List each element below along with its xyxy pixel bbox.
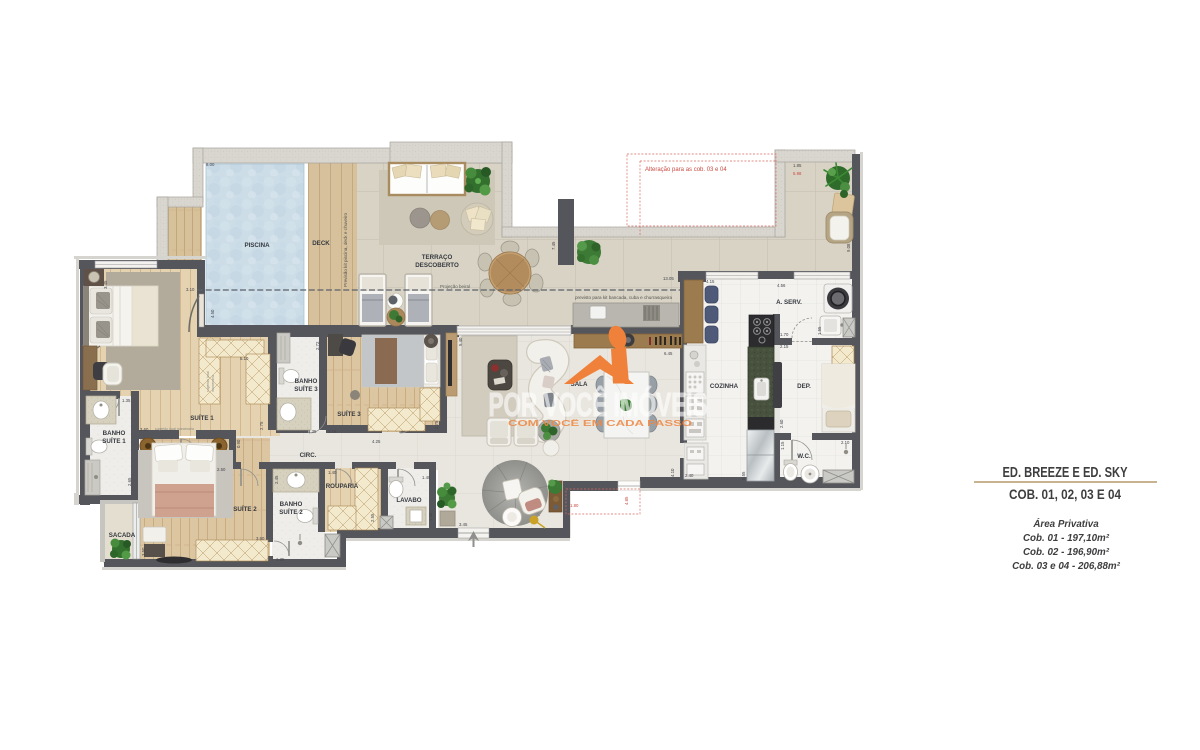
svg-text:BANHO: BANHO bbox=[280, 501, 303, 508]
svg-text:4.10: 4.10 bbox=[670, 468, 675, 477]
svg-text:2.60: 2.60 bbox=[779, 419, 784, 428]
svg-text:1.80: 1.80 bbox=[570, 503, 579, 508]
svg-text:Área Privativa: Área Privativa bbox=[1032, 519, 1099, 530]
svg-text:Alteração para as cob. 03 e 04: Alteração para as cob. 03 e 04 bbox=[645, 167, 727, 173]
svg-text:SUÍTE 2: SUÍTE 2 bbox=[233, 505, 257, 513]
svg-text:1.85: 1.85 bbox=[793, 163, 802, 168]
svg-text:4.15: 4.15 bbox=[706, 279, 715, 284]
svg-text:2.45: 2.45 bbox=[274, 475, 279, 484]
svg-text:3.45: 3.45 bbox=[103, 280, 108, 289]
svg-text:2.75: 2.75 bbox=[434, 420, 439, 429]
svg-text:SUÍTE 1: SUÍTE 1 bbox=[190, 414, 214, 422]
svg-text:W.C.: W.C. bbox=[797, 453, 811, 460]
svg-text:CIRC.: CIRC. bbox=[300, 452, 317, 459]
svg-text:LAVABO: LAVABO bbox=[396, 497, 421, 504]
svg-text:2.72: 2.72 bbox=[315, 341, 320, 350]
svg-text:2.55: 2.55 bbox=[370, 513, 375, 522]
svg-text:DESCOBERTO: DESCOBERTO bbox=[415, 262, 459, 269]
svg-text:ED. BREEZE E ED. SKY: ED. BREEZE E ED. SKY bbox=[1003, 465, 1128, 481]
svg-text:SACADA: SACADA bbox=[109, 532, 136, 539]
svg-text:2.10: 2.10 bbox=[841, 440, 850, 445]
svg-text:1.55: 1.55 bbox=[817, 326, 822, 335]
svg-text:COZINHA: COZINHA bbox=[710, 383, 739, 390]
svg-text:marcenaria: marcenaria bbox=[211, 375, 215, 392]
svg-text:sugerido local: sugerido local bbox=[206, 371, 210, 392]
svg-text:1.15: 1.15 bbox=[780, 441, 785, 450]
svg-text:5.55: 5.55 bbox=[741, 471, 746, 480]
svg-text:1.35: 1.35 bbox=[276, 557, 285, 562]
svg-text:5.40: 5.40 bbox=[458, 337, 463, 346]
svg-text:3.60: 3.60 bbox=[256, 536, 265, 541]
svg-text:Projeção beiral: Projeção beiral bbox=[440, 284, 470, 289]
svg-text:SUÍTE 3: SUÍTE 3 bbox=[337, 410, 361, 418]
svg-text:2.40: 2.40 bbox=[685, 473, 694, 478]
svg-text:1.40: 1.40 bbox=[422, 475, 431, 480]
svg-text:4.50: 4.50 bbox=[210, 309, 215, 318]
svg-text:sugerido local marcenaria: sugerido local marcenaria bbox=[155, 427, 194, 431]
svg-text:ROUPARIA: ROUPARIA bbox=[326, 483, 359, 490]
svg-text:6.45: 6.45 bbox=[664, 351, 673, 356]
svg-text:3.45: 3.45 bbox=[459, 522, 468, 527]
svg-text:SUÍTE 2: SUÍTE 2 bbox=[279, 508, 303, 516]
svg-text:3.60: 3.60 bbox=[140, 427, 149, 432]
svg-text:5.98: 5.98 bbox=[793, 171, 802, 176]
svg-text:2.50: 2.50 bbox=[217, 467, 226, 472]
svg-text:5.10: 5.10 bbox=[240, 356, 249, 361]
svg-text:8.00: 8.00 bbox=[206, 162, 215, 167]
svg-text:TERRAÇO: TERRAÇO bbox=[422, 254, 453, 261]
svg-text:DEP.: DEP. bbox=[797, 383, 811, 390]
svg-text:A. SERV.: A. SERV. bbox=[776, 299, 802, 306]
svg-text:SUÍTE 1: SUÍTE 1 bbox=[102, 437, 126, 445]
svg-text:1.40: 1.40 bbox=[328, 470, 337, 475]
svg-text:0.90: 0.90 bbox=[236, 439, 241, 448]
svg-text:4.25: 4.25 bbox=[372, 439, 381, 444]
svg-text:1.70: 1.70 bbox=[780, 332, 789, 337]
svg-text:PISCINA: PISCINA bbox=[244, 242, 270, 249]
svg-text:SUÍTE 3: SUÍTE 3 bbox=[294, 385, 318, 393]
svg-text:POR VOCÊ IMÓVEIS: POR VOCÊ IMÓVEIS bbox=[489, 386, 708, 423]
svg-text:7.45: 7.45 bbox=[551, 241, 556, 250]
svg-text:Previsão kit piscina, deck e c: Previsão kit piscina, deck e chuveiro bbox=[343, 213, 348, 287]
svg-text:COB. 01, 02, 03 E 04: COB. 01, 02, 03 E 04 bbox=[1009, 487, 1121, 502]
svg-text:3.15: 3.15 bbox=[328, 429, 337, 434]
svg-text:4.85: 4.85 bbox=[624, 496, 629, 505]
svg-text:previsto para kit bancada, cub: previsto para kit bancada, cuba e churra… bbox=[575, 295, 672, 300]
svg-text:Cob. 02 - 196,90m²: Cob. 02 - 196,90m² bbox=[1023, 547, 1110, 558]
svg-text:Cob. 01 - 197,10m²: Cob. 01 - 197,10m² bbox=[1023, 533, 1110, 544]
svg-text:Cob. 03 e 04 - 206,88m²: Cob. 03 e 04 - 206,88m² bbox=[1012, 561, 1121, 572]
svg-text:1.35: 1.35 bbox=[122, 398, 131, 403]
svg-text:BANHO: BANHO bbox=[295, 378, 318, 385]
svg-text:1.50: 1.50 bbox=[428, 512, 433, 521]
svg-text:2.15: 2.15 bbox=[780, 344, 789, 349]
svg-text:3.10: 3.10 bbox=[186, 287, 195, 292]
svg-text:2.65: 2.65 bbox=[127, 477, 132, 486]
svg-text:COM VOCÊ EM CADA PASSO: COM VOCÊ EM CADA PASSO bbox=[508, 419, 692, 428]
svg-text:3.50: 3.50 bbox=[141, 547, 146, 556]
svg-text:2.75: 2.75 bbox=[259, 421, 264, 430]
svg-text:BANHO: BANHO bbox=[103, 430, 126, 437]
svg-text:13.05: 13.05 bbox=[663, 276, 674, 281]
svg-text:9.08: 9.08 bbox=[846, 243, 851, 252]
svg-text:4.56: 4.56 bbox=[777, 283, 786, 288]
svg-text:DECK: DECK bbox=[312, 240, 330, 247]
svg-text:1.35: 1.35 bbox=[308, 429, 317, 434]
